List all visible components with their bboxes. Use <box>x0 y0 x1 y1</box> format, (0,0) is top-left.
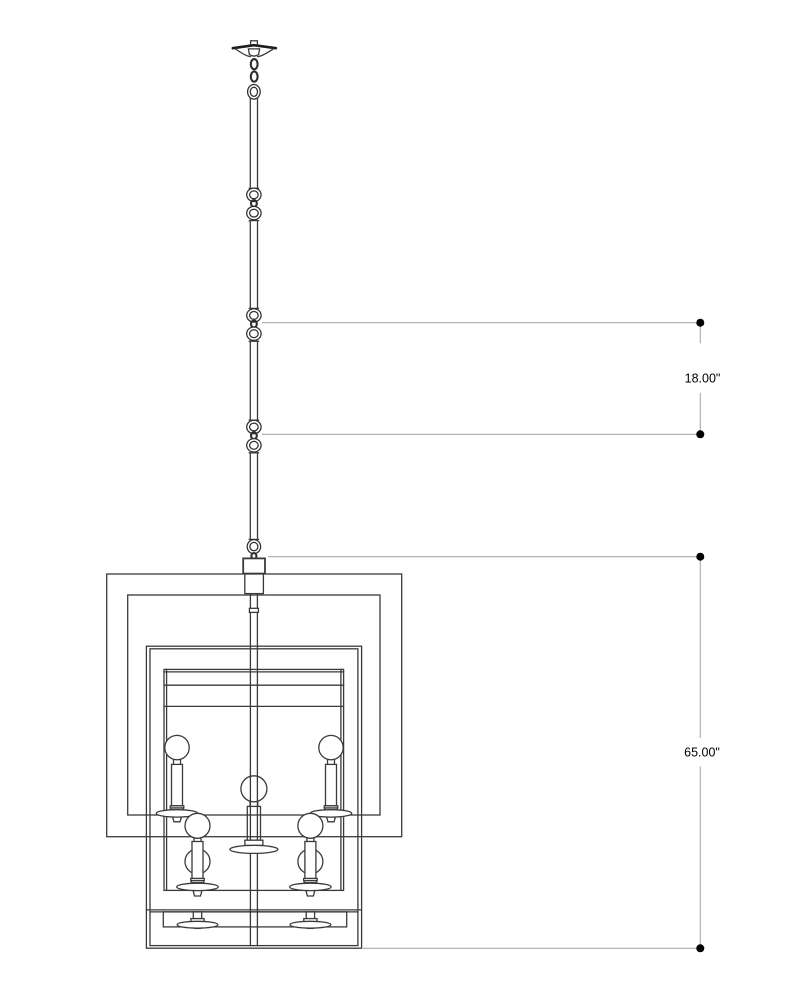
dimension-lines <box>262 323 700 435</box>
ceiling-canopy <box>233 41 276 57</box>
dimension-marker-dot <box>696 553 704 561</box>
bulb-upper-right <box>310 735 352 821</box>
candle-sleeve <box>326 764 337 805</box>
bulb-upper-left <box>156 735 198 821</box>
dimension-label-18: 18.00" <box>685 372 721 386</box>
bulb-lower-left <box>177 813 219 896</box>
dimension-label-65: 65.00" <box>684 746 720 760</box>
inner-shade <box>164 669 344 890</box>
rod-segment <box>249 341 258 420</box>
candle-cup <box>306 891 315 896</box>
dimension-marker-dot <box>696 944 704 952</box>
bulb-globe <box>165 735 189 759</box>
chain-link-icon <box>251 72 258 82</box>
bulb-globe <box>185 813 210 838</box>
bobeche <box>290 883 332 890</box>
rod-joint <box>247 188 261 220</box>
rod-joint <box>247 420 261 452</box>
drawing-canvas: 18.00" 65.00" <box>0 0 800 1000</box>
dimension-marker-dot <box>696 430 704 438</box>
dimension-marker-dot <box>696 319 704 327</box>
canopy-top-plate <box>233 45 276 48</box>
fixture-hang-loop <box>247 540 260 559</box>
candle-sleeve <box>247 806 260 840</box>
chain-link-icon <box>251 59 258 69</box>
stem-coupler <box>249 608 258 612</box>
rod-segment <box>249 221 258 309</box>
bulb-globe <box>319 735 343 759</box>
bottom-socket-right <box>290 912 331 929</box>
fixture-body <box>107 558 402 948</box>
candle-cup <box>173 817 182 822</box>
candle-cup <box>327 817 336 822</box>
canopy-hub <box>248 49 259 56</box>
candle-sleeve <box>305 842 316 879</box>
bottom-socket-left <box>177 912 218 929</box>
candle-sleeve <box>192 842 203 879</box>
rod-segment <box>249 453 258 540</box>
hanging-rod <box>247 99 261 559</box>
bulb-globe <box>241 776 267 802</box>
candle-cup <box>193 891 202 896</box>
rod-segment <box>249 99 258 189</box>
bobeche <box>290 921 331 928</box>
bulb-lower-right <box>290 813 332 896</box>
bobeche <box>177 921 218 928</box>
bulb-globe <box>298 813 323 838</box>
dimension-rod-section: 18.00" <box>262 319 720 439</box>
chandelier-elevation-drawing: 18.00" 65.00" <box>0 0 800 1000</box>
mounting-block <box>243 558 265 593</box>
rod-joint <box>247 309 261 341</box>
chain-links <box>248 59 261 99</box>
candle-sleeve <box>172 764 183 805</box>
bobeche <box>230 845 278 853</box>
bobeche <box>177 883 219 890</box>
